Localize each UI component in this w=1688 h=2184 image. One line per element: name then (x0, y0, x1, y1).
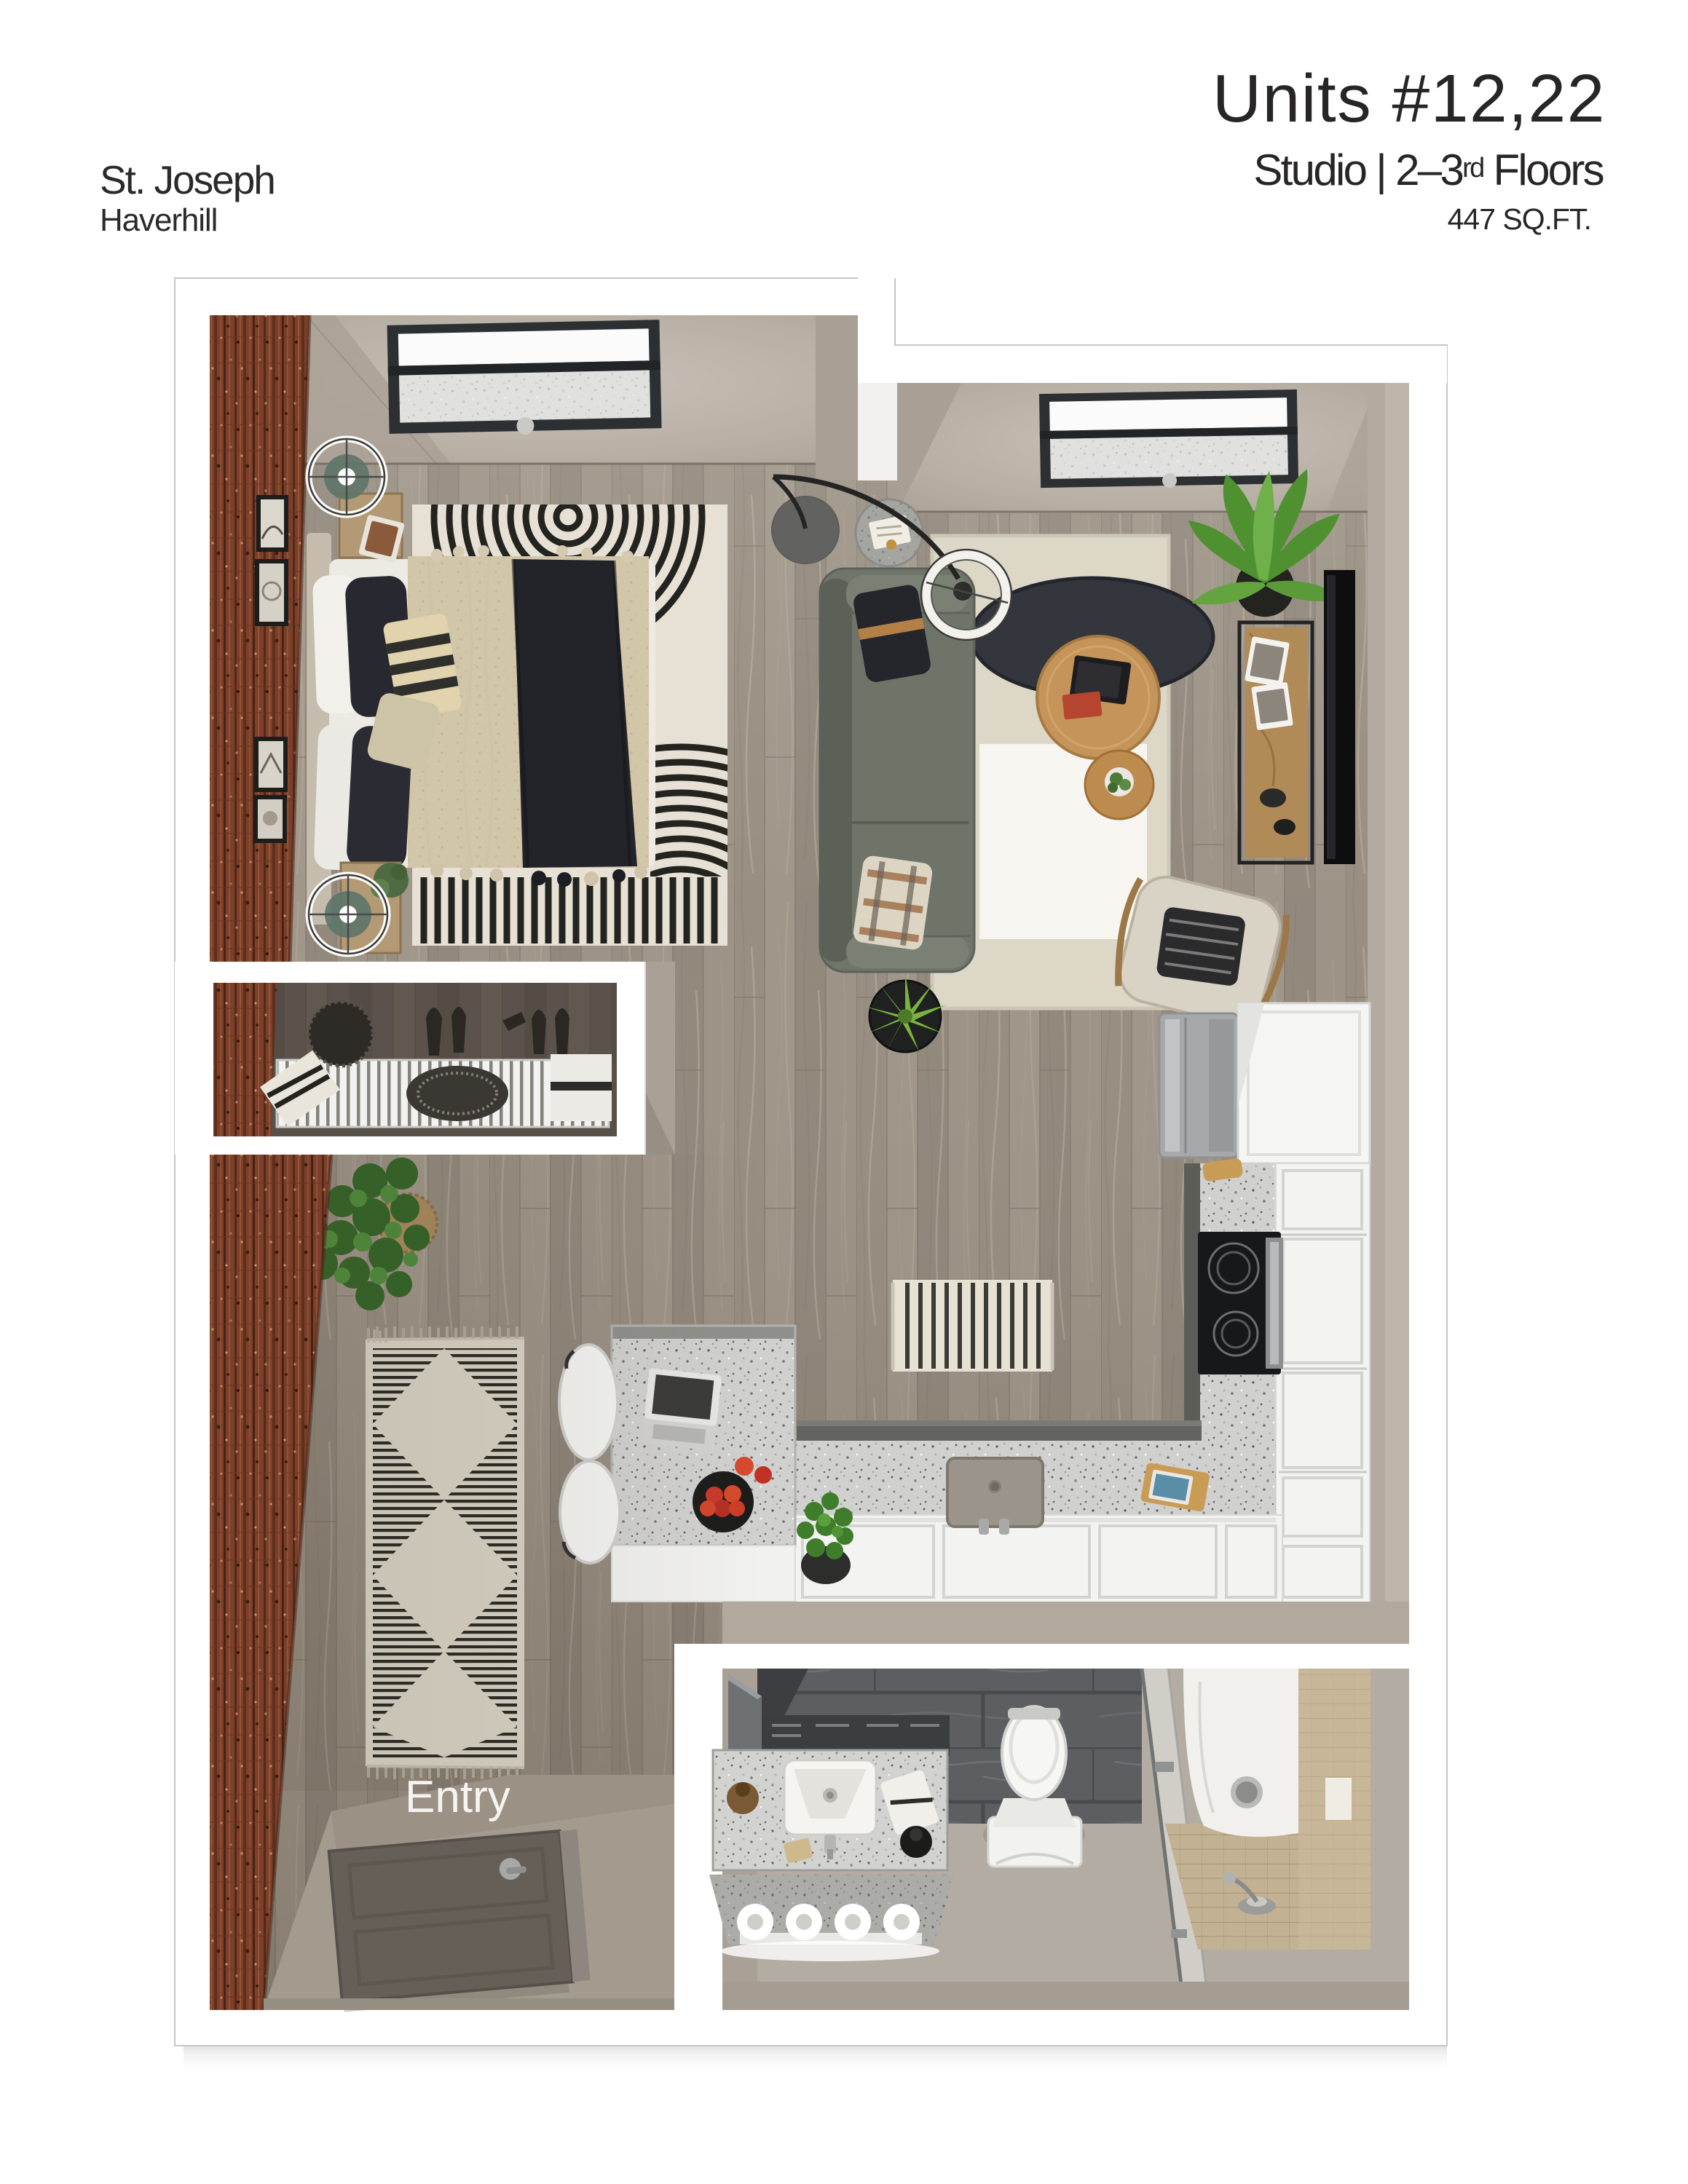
svg-text:Haverhill: Haverhill (100, 202, 217, 238)
svg-text:Entry: Entry (405, 1772, 510, 1822)
svg-text:447 SQ.FT.: 447 SQ.FT. (1448, 202, 1591, 236)
svg-text:Units #12,22: Units #12,22 (1212, 60, 1606, 136)
svg-text:Studio | 2–3rd Floors: Studio | 2–3rd Floors (1253, 146, 1603, 194)
svg-text:St. Joseph: St. Joseph (100, 157, 275, 202)
